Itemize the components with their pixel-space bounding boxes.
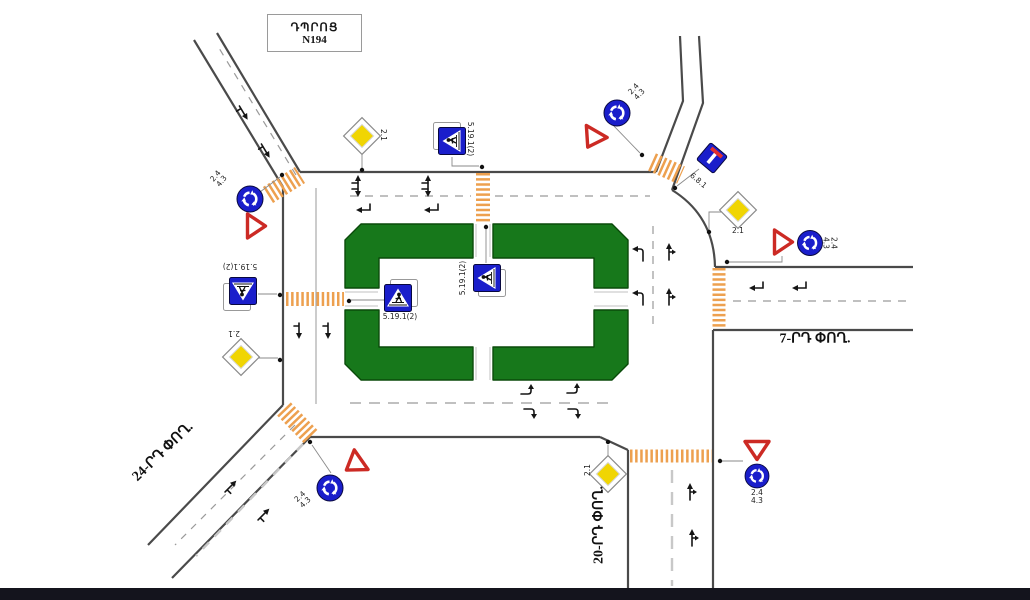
dead-end-sign-icon [697,143,728,174]
give-way-sign-icon [340,450,369,480]
sign-code-label: 5.19.1(2) [459,261,467,295]
road-network [148,33,913,588]
priority-road-sign-icon [223,339,260,376]
sign-code-label: 5.19.1(2) [383,313,417,321]
sign-code-label: 2.1 [584,464,592,476]
give-way-sign-icon [248,214,266,238]
roundabout-sign-icon [745,464,769,488]
sign-code-label: 2.4 4.3 [821,237,838,249]
give-way-sign-icon [775,230,793,254]
roundabout-sign-icon [237,186,263,212]
pedestrian-crossing-sign-icon [385,280,418,312]
pedestrian-crossing-sign-icon [474,265,506,297]
sign-leader-lines [256,124,782,473]
sign-code-label: 2.1 [228,329,240,337]
crosswalks [268,162,719,456]
sign-code-label: 2.1 [732,227,744,235]
give-way-sign-icon [577,126,607,154]
lane-markings [175,48,910,586]
bottom-bar [0,588,1030,600]
roundabout-sign-icon [604,100,630,126]
priority-road-sign-icon [344,118,381,155]
give-way-sign-icon [745,442,769,460]
school-number: N194 [302,34,326,46]
sign-code-label: 2.1 [379,129,387,141]
school-name: ԴՊՐՈՑ [291,20,339,34]
school-label-box: ԴՊՐՈՑ N194 [267,14,362,52]
roundabout-sign-icon [798,231,823,256]
traffic-scheme-canvas: ԴՊՐՈՑ N194 2.1 5.19.1(2) 2.4 4.3 6.8.1 2… [0,0,1030,600]
sign-code-label: 5.19.1(2) [223,262,257,270]
sign-code-label: 2.4 4.3 [751,489,763,506]
sign-code-label: 5.19.1(2) [466,122,474,156]
pedestrian-crossing-sign-icon [224,278,257,311]
road-scheme-drawing [0,0,1030,600]
roundabout-sign-icon [317,475,343,501]
pedestrian-crossing-sign-icon [434,123,466,155]
street-name-7: 7-ՐԴ ՓՈՂ. [779,331,850,348]
priority-road-sign-icon [720,192,757,229]
street-name-20: 20-ՐԴ ՓՈՂ. [591,486,608,564]
